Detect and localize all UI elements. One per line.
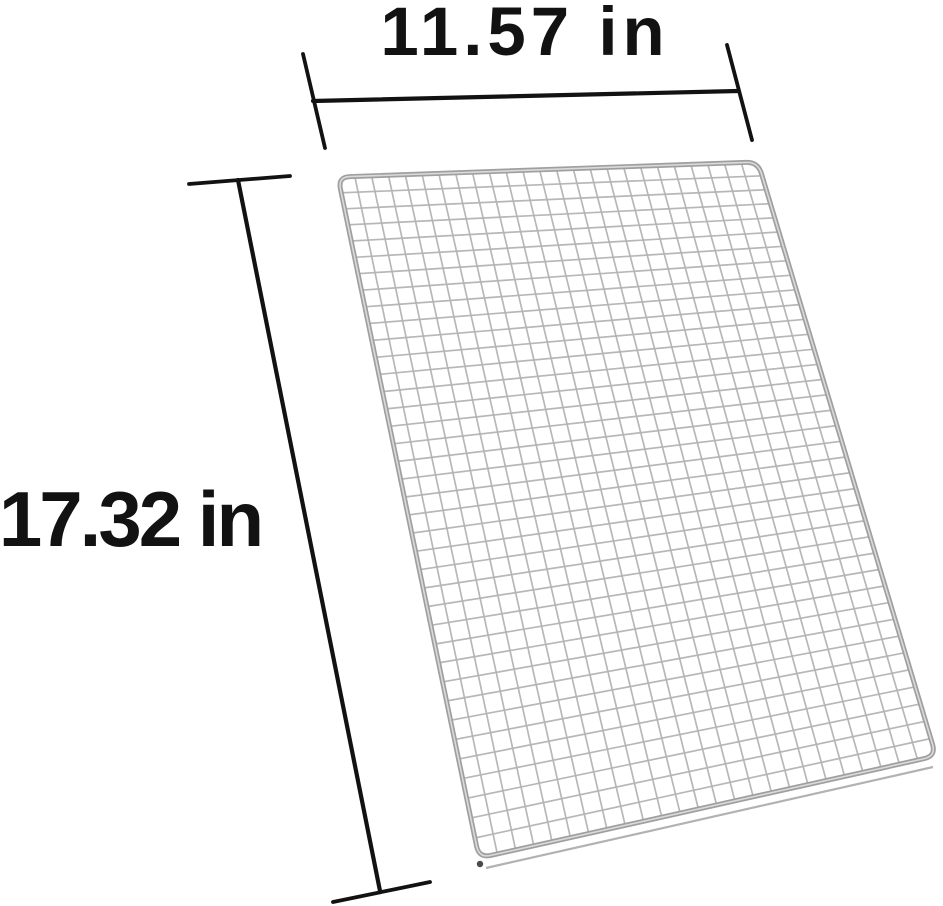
wire-mesh-grate xyxy=(340,162,933,868)
mesh-wire-horizontal xyxy=(431,553,875,625)
diagram-canvas xyxy=(0,0,943,906)
frame-bottom-edge xyxy=(486,767,933,868)
mesh-wire-vertical xyxy=(741,163,918,761)
height-dimension-tick-bottom xyxy=(333,882,430,902)
mesh-wire-horizontal xyxy=(435,569,880,644)
height-dimension-label: 17.32 in xyxy=(0,480,270,558)
mesh-wire-vertical xyxy=(724,163,899,764)
mesh-wire-vertical xyxy=(674,165,845,776)
width-dimension-rule xyxy=(313,91,738,101)
width-dimension-label: 11.57 in xyxy=(310,0,740,66)
mesh-wire-horizontal xyxy=(455,653,906,740)
mesh-wire-horizontal xyxy=(463,687,916,779)
corner-weld-dot xyxy=(477,861,483,867)
product-dimension-diagram: 11.57 in 17.32 in xyxy=(0,0,943,906)
mesh-wire-horizontal xyxy=(471,721,926,818)
mesh-wire-vertical xyxy=(372,176,516,850)
mesh-wire-vertical xyxy=(456,173,607,830)
mesh-wire-vertical xyxy=(540,170,699,809)
mesh-wire-horizontal xyxy=(459,670,911,759)
mesh-wire-vertical xyxy=(708,164,882,768)
mesh-wire-horizontal xyxy=(443,602,891,682)
mesh-wire-vertical xyxy=(624,167,790,789)
mesh-wire-vertical xyxy=(388,175,533,846)
mesh-wire-vertical xyxy=(657,166,826,781)
mesh-wire-vertical xyxy=(691,164,863,772)
mesh-wire-vertical xyxy=(640,166,808,784)
mesh-wire-vertical xyxy=(355,176,498,854)
